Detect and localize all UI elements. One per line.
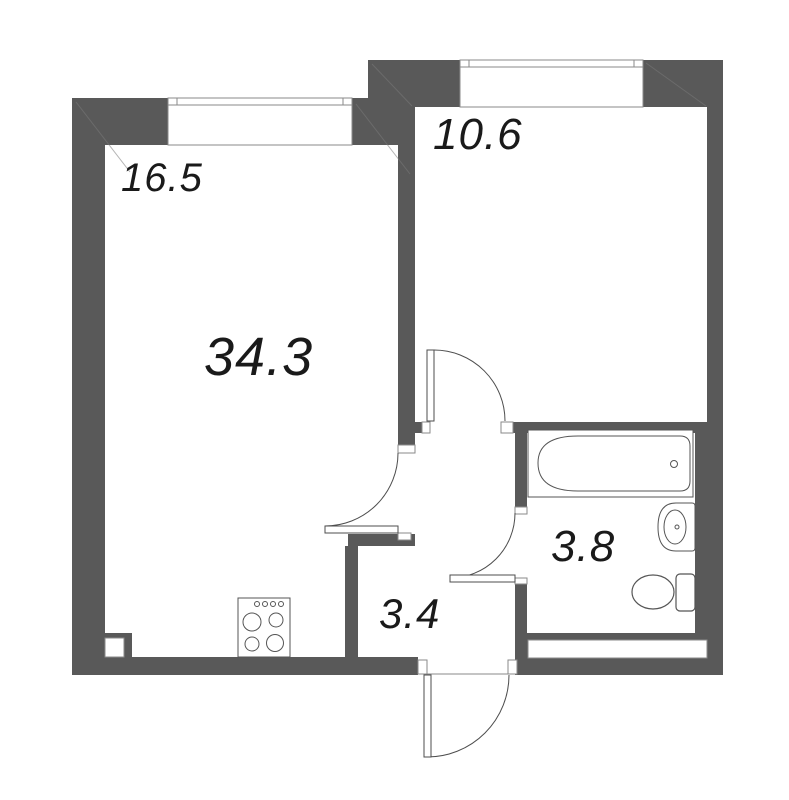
door-jamb — [515, 578, 527, 584]
wall-segment-bedroom-top-left — [413, 60, 460, 107]
wall-segment-interroom — [398, 98, 415, 445]
stove-burner — [245, 637, 259, 651]
window-bedroom — [460, 60, 643, 107]
wall-niche — [105, 638, 124, 657]
bathtub-basin — [538, 436, 690, 491]
door-jamb — [398, 445, 415, 453]
sink-faucet — [675, 525, 679, 529]
door-swing-arc — [325, 453, 398, 526]
area-label-living-room: 16.5 — [121, 158, 203, 198]
door-jamb — [422, 422, 430, 433]
toilet-tank — [676, 574, 695, 611]
door-swing-arc — [450, 513, 515, 578]
stove-knob — [263, 602, 268, 607]
door-leaf — [325, 526, 398, 533]
sink-icon — [658, 503, 695, 551]
door-jamb — [398, 533, 411, 540]
stove-icon — [238, 598, 290, 657]
door-leaf — [427, 350, 434, 421]
wall-segment-bathroom-left-upper — [515, 433, 527, 507]
area-label-bedroom: 10.6 — [433, 113, 523, 157]
stove-knob — [279, 602, 284, 607]
door-swing-arc — [427, 675, 509, 757]
window-end-block — [168, 98, 177, 105]
wall-segment-bottom-left — [72, 657, 418, 675]
toilet-icon — [632, 574, 695, 611]
door-entrance — [424, 675, 509, 757]
door-living-room — [325, 453, 398, 533]
door-swing-arc — [434, 350, 505, 421]
area-label-hallway: 3.4 — [379, 593, 440, 635]
stove-burner — [269, 613, 283, 627]
walls — [72, 60, 723, 675]
window-end-block — [343, 98, 352, 105]
area-label-bathroom: 3.8 — [551, 525, 615, 569]
wall-segment-left — [72, 98, 105, 675]
door-jamb — [418, 660, 427, 674]
window-end-block — [634, 60, 643, 67]
floor-plan: 16.5 10.6 34.3 3.8 3.4 — [0, 0, 789, 800]
window-end-block — [460, 60, 469, 67]
toilet-bowl — [632, 575, 674, 609]
floor-plan-drawing — [0, 0, 789, 800]
stove-burner — [243, 613, 261, 631]
door-jamb — [501, 422, 513, 433]
wall-segment-bedroom-door-stub — [415, 422, 422, 433]
area-label-total: 34.3 — [204, 330, 313, 384]
wall-segment-right-upper — [707, 60, 723, 425]
bathtub-drain — [671, 461, 678, 468]
door-jamb — [508, 660, 517, 674]
door-bathroom — [450, 513, 515, 582]
window-living-room — [168, 98, 352, 145]
stove-knob — [271, 602, 276, 607]
stove-knob — [255, 602, 260, 607]
wall-segment-hall-vertical — [345, 546, 358, 657]
door-leaf — [450, 575, 515, 582]
wall-segment-top-left — [72, 98, 168, 145]
door-leaf — [424, 675, 431, 757]
door-bedroom — [427, 350, 505, 421]
bathtub-icon — [528, 430, 693, 497]
stove-burner — [267, 635, 284, 652]
vent-shaft — [528, 640, 707, 658]
door-jamb — [515, 507, 527, 514]
